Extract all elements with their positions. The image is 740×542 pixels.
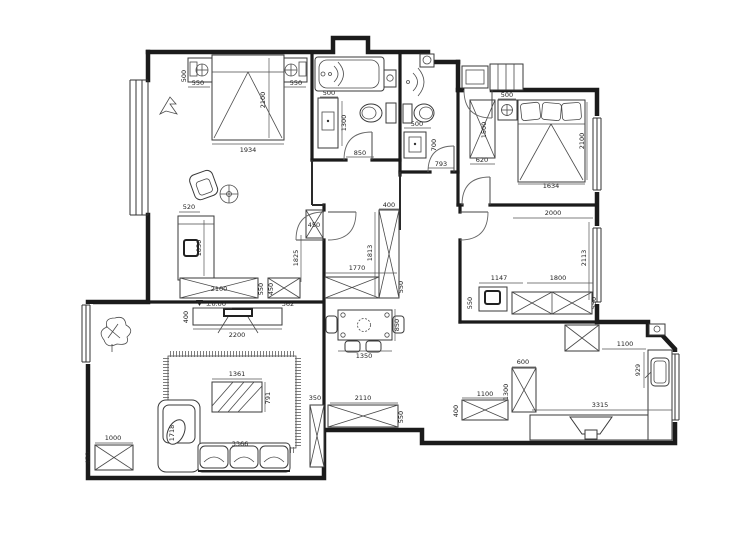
- dim-label: 3315: [592, 401, 609, 409]
- floor-plan-drawing: 500 550 550 2100 1934 520 1850 1825 2100…: [0, 0, 740, 542]
- dim-label: 1100: [617, 340, 634, 348]
- dim-label: 1361: [229, 370, 246, 378]
- entry-stairs: [462, 64, 523, 90]
- dim-label: 929: [634, 364, 642, 376]
- floor-plan-canvas: 500 550 550 2100 1934 520 1850 1825 2100…: [0, 0, 740, 542]
- gas-meter: [649, 324, 665, 335]
- long-cabinet: [512, 292, 592, 314]
- door: [460, 212, 488, 240]
- dim-label: 2100: [211, 285, 228, 293]
- dim-label: 550: [590, 297, 598, 309]
- bedroom-door: [462, 177, 490, 205]
- balcony-window: [82, 304, 93, 364]
- long-cabinet: [325, 277, 379, 298]
- master-bedroom: [188, 55, 307, 203]
- kitchen: [462, 324, 672, 440]
- dim-label: 2110: [355, 394, 372, 402]
- dim-label: 3366: [232, 440, 249, 448]
- dim-label: 450: [267, 283, 275, 295]
- coffee-table: [212, 382, 262, 412]
- dim-label: 400: [452, 405, 460, 417]
- dim-label: 450: [308, 221, 320, 229]
- dim-label: 2000: [545, 209, 562, 217]
- vanity-sink: [318, 98, 338, 148]
- dim-label: 550: [290, 79, 302, 87]
- fridge: [565, 325, 599, 351]
- bathroom-1: [315, 57, 396, 160]
- dim-label: 700: [430, 139, 438, 151]
- bedroom3-window: [592, 226, 603, 304]
- dim-label: 1800: [550, 274, 567, 282]
- dim-label: 1147: [491, 274, 508, 282]
- dim-label: 620: [476, 156, 488, 164]
- dim-label: 400: [383, 201, 395, 209]
- dim-label: 791: [264, 392, 272, 404]
- nightstand: [498, 100, 517, 120]
- dim-label: 1500: [480, 122, 488, 139]
- hall-door: [328, 212, 356, 240]
- plant-icon: [101, 317, 131, 352]
- storage-row: [328, 405, 398, 427]
- dim-label: 600: [517, 358, 529, 366]
- cabinet-1100: [462, 400, 508, 420]
- armchair: [188, 169, 219, 202]
- dim-label: 500: [180, 70, 188, 82]
- dim-label: 1634: [543, 182, 560, 190]
- dim-label: 850: [354, 149, 366, 157]
- dim-label: 550: [397, 281, 405, 293]
- dim-label: 450: [84, 452, 92, 464]
- dim-label: 550: [257, 283, 265, 295]
- shoe-cabinet: [95, 445, 133, 470]
- dim-label: 500: [323, 89, 335, 97]
- dim-label: 500: [411, 120, 423, 128]
- tall-cabinet-600: [512, 368, 536, 412]
- dim-label: 850: [393, 319, 401, 331]
- dim-label: 1825: [292, 250, 300, 267]
- dim-label: 550: [466, 297, 474, 309]
- dim-label: 362: [282, 300, 294, 308]
- dim-label: 2100: [259, 92, 267, 109]
- toilet: [360, 103, 396, 123]
- bathtub: [315, 57, 384, 91]
- wall-box: [384, 70, 396, 87]
- dining-table: [338, 310, 392, 340]
- double-bed: [212, 55, 284, 140]
- dim-label: 500: [501, 91, 513, 99]
- double-bed: [518, 100, 585, 182]
- dim-label: 1850: [195, 240, 203, 257]
- dim-label: 550: [192, 79, 204, 87]
- living-room: [95, 300, 324, 472]
- vanity-sink: [404, 132, 426, 158]
- dim-label: 550: [397, 411, 405, 423]
- ceiling-fan-icon: [220, 185, 238, 203]
- dim-label: 1718: [168, 425, 176, 442]
- dim-label: 2100: [578, 133, 586, 150]
- dim-label: 1000: [105, 434, 122, 442]
- dim-label: 1300: [502, 384, 510, 401]
- dim-label: 1813: [366, 245, 374, 262]
- row-cabinet: [328, 405, 398, 427]
- dim-label: 1100: [477, 390, 494, 398]
- side-cabinet: [310, 405, 324, 467]
- dim-label: 1770: [349, 264, 366, 272]
- dim-label: 520: [183, 203, 195, 211]
- dim-label: 2113: [580, 250, 588, 267]
- bathroom-2: [403, 54, 454, 172]
- tall-cabinet: [379, 210, 399, 298]
- dim-label: 1300: [340, 115, 348, 132]
- dim-label: ±0.00: [206, 300, 226, 308]
- water-heater: [420, 54, 434, 67]
- bay-window: [130, 80, 148, 215]
- dim-label: 1350: [356, 352, 373, 360]
- dim-label: 793: [435, 160, 447, 168]
- dim-label: 1934: [240, 146, 257, 154]
- bedroom-3: [460, 212, 592, 314]
- desk: [479, 287, 507, 311]
- bedroom2-window: [592, 116, 603, 192]
- dim-label: 2200: [229, 331, 246, 339]
- entry-arrow-icon: [160, 97, 177, 114]
- shower-spray-icon: [407, 68, 425, 96]
- bedroom-2: [462, 90, 585, 205]
- dim-label: 350: [309, 394, 321, 402]
- dim-label: 400: [182, 311, 190, 323]
